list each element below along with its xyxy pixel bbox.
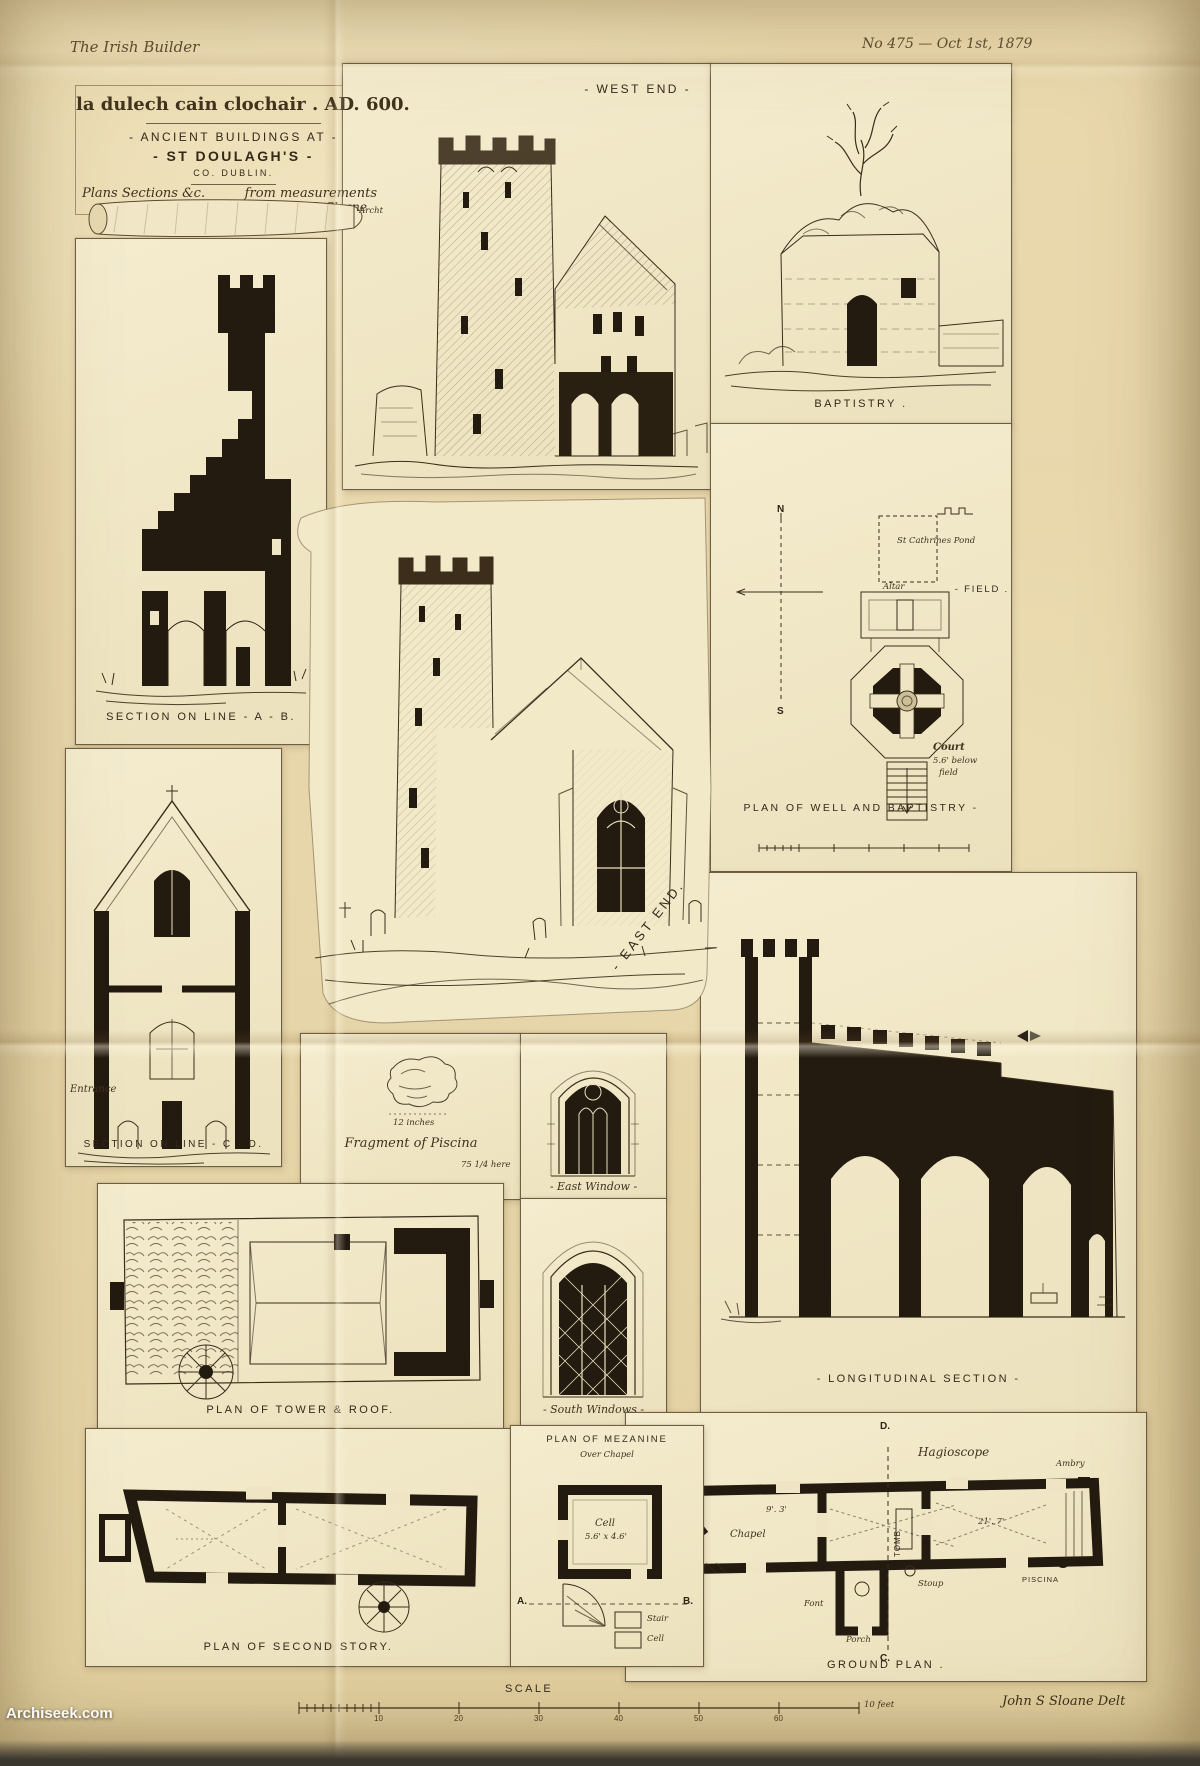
second-story-panel: PLAN OF SECOND STORY. (85, 1428, 512, 1667)
dim-note-1: 9'. 3' (766, 1505, 787, 1515)
piscina-caption: Fragment of Piscina (301, 1136, 521, 1151)
well-plan-caption: PLAN OF WELL AND BAPTISTRY - (711, 802, 1011, 814)
piscina-drawing (301, 1034, 521, 1199)
mezanine-drawing (511, 1426, 703, 1666)
ambry-label: Ambry (1056, 1459, 1085, 1469)
chapel-label: Chapel (730, 1529, 766, 1540)
piscina-label: PISCINA (1022, 1575, 1059, 1584)
second-story-caption: PLAN OF SECOND STORY. (86, 1641, 511, 1653)
piscina-scale-note: 75 1/4 here (461, 1160, 511, 1170)
divider (146, 123, 321, 124)
tower-roof-panel: PLAN OF TOWER & ROOF. (97, 1183, 504, 1430)
divider (191, 184, 276, 185)
compass-north-label: N (777, 504, 784, 515)
entrance-label: Entrance (70, 1084, 116, 1095)
well-plan-panel: N S St Cathrines Pond - FIELD . Altar Co… (710, 423, 1012, 872)
mezanine-caption: PLAN OF MEZANINE (511, 1434, 703, 1445)
hagioscope-label: Hagioscope (918, 1445, 989, 1459)
west-end-panel: - WEST END - (342, 63, 712, 490)
section-cd-caption: SECTION ON LINE - C - D. (66, 1139, 281, 1150)
south-windows-panel: - South Windows - (520, 1198, 667, 1427)
court-note-2: 5.6' below (933, 756, 977, 766)
title-line-2: - ST DOULAGH'S - (76, 148, 391, 164)
east-end-drawing (285, 488, 720, 1033)
east-window-drawing (521, 1034, 666, 1199)
issue-number: No 475 — Oct 1st, 1879 (862, 36, 1032, 52)
section-marker-a: A. (517, 1596, 527, 1607)
section-cd-drawing (66, 749, 281, 1166)
section-marker-d: D. (880, 1421, 890, 1432)
section-marker-b: B. (683, 1596, 693, 1607)
ground-plan-drawing (626, 1413, 1146, 1681)
mezanine-panel: PLAN OF MEZANINE Over Chapel Cell 5.6' x… (510, 1425, 704, 1667)
scroll-drawing (78, 194, 370, 242)
delineator-credit: John S Sloane Delt (1002, 1694, 1125, 1709)
scale-tick: 10 (374, 1714, 383, 1723)
watermark: Archiseek.com (6, 1705, 113, 1722)
tomb-label: TOMB (893, 1530, 902, 1557)
cell-label: Cell (595, 1518, 615, 1529)
piscina-panel: 12 inches Fragment of Piscina 75 1/4 her… (300, 1033, 522, 1200)
gaelic-title: la dulech cain clochair . AD. 600. (76, 94, 391, 115)
scale-bar: 10 20 30 40 50 60 10 feet (298, 1698, 898, 1724)
longitudinal-caption: - LONGITUDINAL SECTION - (701, 1373, 1136, 1385)
baptistry-drawing (711, 64, 1011, 424)
pond-label: St Cathrines Pond (897, 536, 975, 546)
title-line-3: CO. DUBLIN. (76, 168, 391, 178)
piscina-note: 12 inches (393, 1118, 434, 1128)
east-window-panel: - East Window - (520, 1033, 667, 1200)
compass-south-label: S (777, 706, 784, 717)
baptistry-panel: BAPTISTRY . (710, 63, 1012, 425)
altar-label: Altar (883, 582, 904, 592)
scale-tick: 50 (694, 1714, 703, 1723)
cell-dimension: 5.6' x 4.6' (585, 1532, 627, 1542)
stoup-label: Stoup (918, 1579, 943, 1589)
tower-roof-drawing (98, 1184, 503, 1429)
stair-label: Stair (647, 1614, 668, 1624)
court-note-3: field (939, 768, 958, 778)
baptistry-caption: BAPTISTRY . (711, 398, 1011, 410)
scale-bar-drawing (298, 1698, 898, 1724)
scale-tick: 20 (454, 1714, 463, 1723)
section-marker-c: C. (880, 1653, 890, 1664)
scale-tick: 30 (534, 1714, 543, 1723)
longitudinal-panel: - LONGITUDINAL SECTION - (700, 872, 1137, 1414)
second-story-drawing (86, 1429, 511, 1666)
field-label: - FIELD . (955, 584, 1009, 595)
west-end-caption: - WEST END - (584, 82, 691, 96)
south-windows-drawing (521, 1199, 666, 1426)
scale-tick: 40 (614, 1714, 623, 1723)
east-window-caption: - East Window - (521, 1180, 666, 1193)
photo-backdrop-edge (0, 1740, 1200, 1766)
scanned-plate: The Irish Builder No 475 — Oct 1st, 1879… (0, 0, 1200, 1766)
longitudinal-drawing (701, 873, 1136, 1413)
section-cd-panel: Entrance SECTION ON LINE - C - D. (65, 748, 282, 1167)
title-line-1: - ANCIENT BUILDINGS AT - (76, 130, 391, 144)
scale-feet-label: 10 feet (864, 1700, 894, 1710)
tower-roof-caption: PLAN OF TOWER & ROOF. (98, 1404, 503, 1416)
journal-title: The Irish Builder (70, 38, 199, 56)
page-tear-mark (1016, 1028, 1042, 1044)
mezanine-subcaption: Over Chapel (511, 1450, 703, 1460)
court-note-1: Court (933, 742, 965, 753)
east-end-sheet: - EAST END. (285, 488, 720, 1033)
dim-note-2: 21'. 7' (978, 1517, 1004, 1527)
scale-label: SCALE (505, 1683, 553, 1695)
font-label: Font (804, 1599, 823, 1609)
scale-tick: 60 (774, 1714, 783, 1723)
cell2-label: Cell (647, 1634, 664, 1644)
west-end-drawing (343, 64, 711, 489)
porch-label: Porch (846, 1635, 871, 1645)
